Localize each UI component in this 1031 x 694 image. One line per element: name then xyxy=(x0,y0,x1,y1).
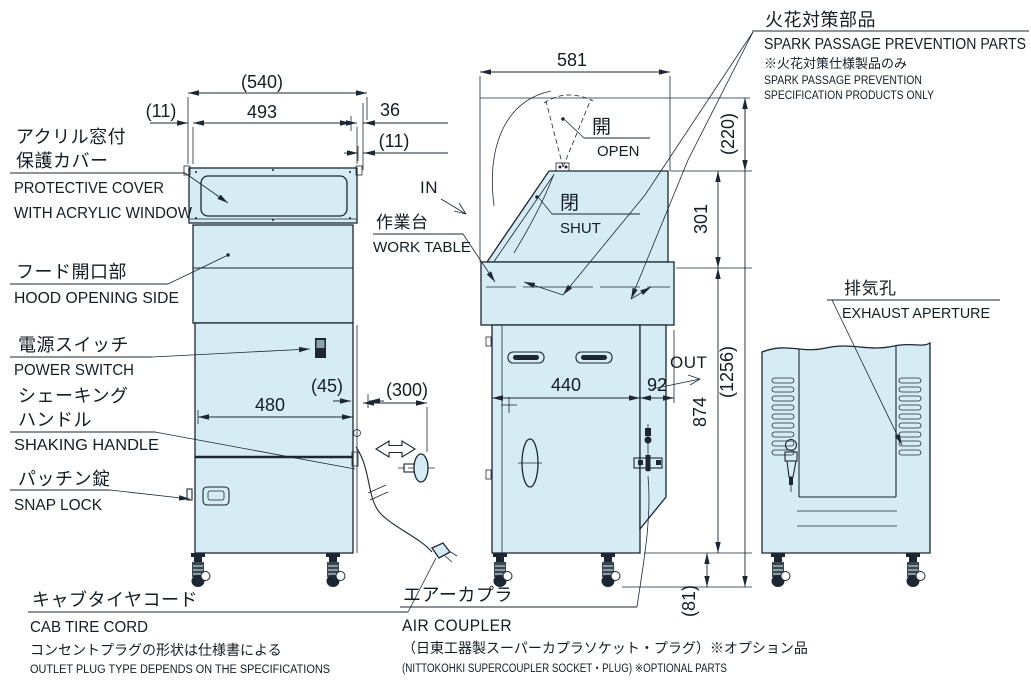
shaking-handle-extended xyxy=(398,454,438,482)
label-cab-jp: キャブタイヤコード xyxy=(32,589,198,610)
dim-581: 581 xyxy=(557,50,587,70)
equipment-dimension-drawing: (540) 493 (11) 36 (11) 480 (45) (300) xyxy=(0,0,1031,694)
rear-view xyxy=(762,343,930,587)
dim-36: 36 xyxy=(380,100,400,120)
label-spark-note-en2: SPECIFICATION PRODUCTS ONLY xyxy=(764,90,934,102)
caster-rear-left xyxy=(771,553,790,587)
label-exhaust-jp: 排気孔 xyxy=(844,279,897,298)
label-shut-jp: 閉 xyxy=(560,193,579,214)
dim-81: (81) xyxy=(679,585,699,617)
label-protective-cover-en2: WITH ACRYLIC WINDOW xyxy=(14,205,193,222)
label-spark-en: SPARK PASSAGE PREVENTION PARTS xyxy=(764,36,1026,53)
caster-side-right xyxy=(601,553,620,587)
label-outlet-note-en: OUTLET PLUG TYPE DEPENDS ON THE SPECIFIC… xyxy=(30,664,330,676)
dim-874: 874 xyxy=(690,397,710,427)
label-in: IN xyxy=(420,178,438,197)
cabinet-body-rear xyxy=(762,343,930,553)
hood-front-panel xyxy=(193,225,353,323)
dim-300: (300) xyxy=(386,380,428,400)
technical-drawing-page: (540) 493 (11) 36 (11) 480 (45) (300) xyxy=(0,0,1031,694)
dim-220: (220) xyxy=(718,113,738,155)
label-air-jp: エアーカプラ xyxy=(403,585,513,605)
label-shaking-en: SHAKING HANDLE xyxy=(14,437,159,454)
dim-440: 440 xyxy=(551,375,581,395)
caster-rear-right xyxy=(906,553,925,587)
label-spark-note-en1: SPARK PASSAGE PREVENTION xyxy=(764,75,922,87)
dim-92: 92 xyxy=(647,375,667,395)
label-worktable-en: WORK TABLE xyxy=(373,239,471,256)
label-shut-en: SHUT xyxy=(560,220,601,237)
label-hood-jp: フード開口部 xyxy=(16,262,127,282)
label-spark-jp: 火花対策部品 xyxy=(765,10,876,30)
caster-front-right xyxy=(326,553,345,587)
label-air-note-en: (NITTOKOHKI SUPERCOUPLER SOCKET・PLUG) ※O… xyxy=(402,663,727,675)
label-cab-en: CAB TIRE CORD xyxy=(30,619,148,636)
label-shaking-jp2: ハンドル xyxy=(18,410,92,430)
label-spark-note-jp: ※火花対策仕様製品のみ xyxy=(764,56,907,71)
label-power-jp: 電源スイッチ xyxy=(18,335,129,355)
label-worktable-jp: 作業台 xyxy=(376,213,429,232)
label-air-note-jp: （日東工器製スーパーカプラソケット・プラグ）※オプション品 xyxy=(402,640,808,656)
caster-side-left xyxy=(493,553,512,587)
label-snap-en: SNAP LOCK xyxy=(14,497,102,514)
dim-45: (45) xyxy=(311,376,343,396)
in-arrow-icon xyxy=(441,199,466,214)
dim-301: 301 xyxy=(691,204,711,234)
dim-480: 480 xyxy=(255,395,285,415)
label-outlet-note-jp: コンセントプラグの形状は仕様書による xyxy=(30,642,282,658)
power-plug xyxy=(432,543,450,558)
label-open-jp: 開 xyxy=(592,117,611,138)
label-out: OUT xyxy=(670,353,707,372)
label-air-en: AIR COUPLER xyxy=(402,616,512,635)
label-hood-en: HOOD OPENING SIDE xyxy=(14,290,179,307)
hood-shut xyxy=(487,171,668,262)
label-shaking-jp1: シェーキング xyxy=(18,386,128,406)
label-snap-jp: パッチン錠 xyxy=(18,469,111,489)
acrylic-window xyxy=(201,176,347,216)
label-exhaust-en: EXHAUST APERTURE xyxy=(842,305,990,322)
label-open-en: OPEN xyxy=(597,143,640,160)
dim-11-left: (11) xyxy=(146,101,177,121)
dim-493: 493 xyxy=(247,102,277,122)
dim-540: (540) xyxy=(241,72,283,92)
dim-11-right: (11) xyxy=(379,131,410,151)
cabinet-body-front xyxy=(195,323,353,553)
dim-1256: (1256) xyxy=(717,346,737,398)
caster-front-left xyxy=(191,553,210,587)
label-power-en: POWER SWITCH xyxy=(14,362,134,379)
worktable-band xyxy=(481,262,674,325)
rear-duct-panel xyxy=(640,325,666,529)
label-protective-cover-en1: PROTECTIVE COVER xyxy=(14,180,164,197)
label-protective-cover-jp2: 保護カバー xyxy=(16,151,109,171)
label-protective-cover-jp1: アクリル窓付 xyxy=(16,127,126,147)
double-arrow-icon xyxy=(376,441,415,457)
